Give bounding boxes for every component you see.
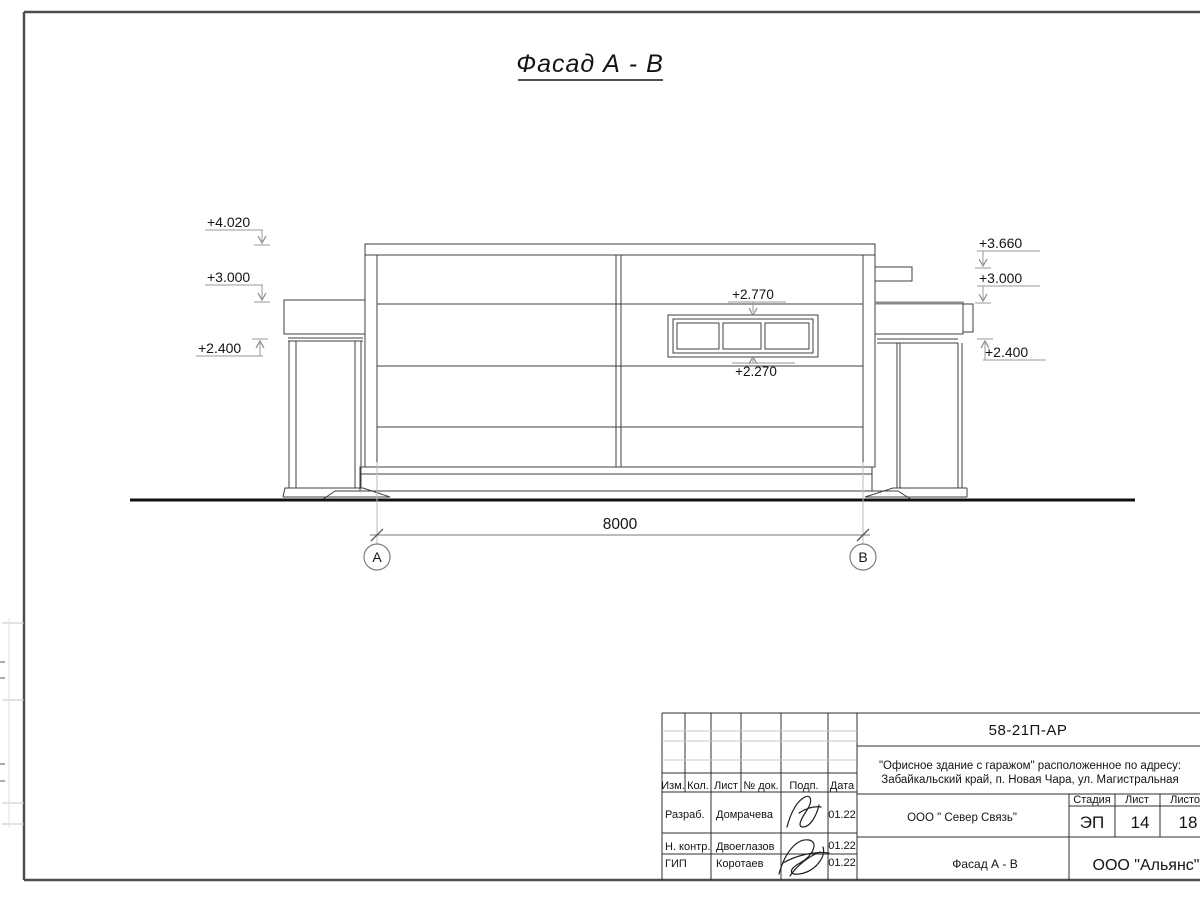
right-canopy-columns	[897, 343, 962, 488]
left-canopy-columns	[289, 341, 361, 488]
stage-value: ЭП	[1080, 813, 1104, 832]
row-role: Н. контр.	[665, 841, 710, 853]
col-kol: Кол.	[687, 780, 709, 792]
ribbon-window	[668, 315, 818, 357]
sheet-value: 14	[1131, 813, 1150, 832]
frame-border	[24, 12, 1200, 880]
drawing-title: Фасад А - В	[516, 50, 664, 80]
sheet-frame	[24, 12, 1200, 880]
col-list: Лист	[714, 780, 738, 792]
base-band	[360, 474, 872, 491]
row-name: Коротаев	[716, 858, 764, 870]
mark-3660-label: +3.660	[979, 235, 1022, 251]
mark-2400l-label: +2.400	[198, 340, 241, 356]
right-canopy-roof	[875, 302, 963, 334]
right-canopy-soffit	[877, 339, 958, 343]
mark-2270-label: +2.270	[735, 364, 777, 379]
main-wall-outline	[365, 244, 875, 467]
mark-2270-leader	[732, 359, 795, 363]
left-canopy-base	[283, 488, 390, 497]
axis-a-label: А	[372, 549, 382, 565]
window-pane-1	[677, 323, 719, 349]
mark-3000r-label: +3.000	[979, 270, 1022, 286]
siding-lines	[377, 304, 863, 427]
dimension-and-axes: 8000 А В	[364, 462, 876, 570]
window-pane-3	[765, 323, 809, 349]
contractor-name: ООО " Север Связь"	[907, 812, 1017, 824]
window-pane-2	[723, 323, 761, 349]
corner-piers	[377, 255, 863, 467]
stage-label: Стадия	[1073, 794, 1111, 806]
sheets-value: 18	[1179, 813, 1198, 832]
mark-2400r-label: +2.400	[985, 344, 1028, 360]
org-name: ООО "Альянс"	[1093, 857, 1200, 874]
mark-4020-label: +4.020	[207, 214, 250, 230]
right-canopy-base	[865, 488, 967, 497]
elevation-marks-right: +3.660 +3.000 +2.400	[975, 235, 1046, 360]
mark-3000l-label: +3.000	[207, 269, 250, 285]
row-date: 01.22	[828, 809, 856, 821]
window-outer-frame	[668, 315, 818, 357]
row-name: Домрачева	[716, 809, 774, 821]
plinth-foundation	[322, 467, 912, 500]
mark-3000r-leader	[975, 286, 1040, 303]
stamp-sheet-name: Фасад А - В	[952, 857, 1017, 871]
col-doc: № док.	[743, 780, 778, 792]
left-canopy-roof	[284, 300, 365, 334]
left-canopy-soffit	[288, 338, 363, 341]
row-role: Разраб.	[665, 809, 705, 821]
col-izm: Изм.	[661, 780, 685, 792]
title-block: 58-21П-АР "Офисное здание с гаражом" рас…	[661, 713, 1200, 880]
margin-lines	[2, 623, 24, 824]
title-block-grid	[662, 713, 1200, 880]
plinth-band	[360, 467, 872, 474]
mark-3660-leader	[975, 251, 1040, 268]
row-date: 01.22	[828, 840, 856, 852]
window-inner-frame	[673, 319, 813, 353]
signatures	[779, 796, 829, 876]
axis-b-label: В	[858, 549, 867, 565]
right-canopy	[865, 302, 973, 497]
mark-4020-leader	[205, 230, 270, 245]
elevation-marks-left: +4.020 +3.000 +2.400	[196, 214, 270, 356]
doc-code: 58-21П-АР	[989, 722, 1068, 739]
row-date: 01.22	[828, 857, 856, 869]
col-data: Дата	[830, 780, 855, 792]
left-margin-marks	[0, 618, 24, 828]
project-address-line2: Забайкальский край, п. Новая Чара, ул. М…	[881, 774, 1179, 786]
roof-projection-box	[875, 267, 912, 281]
wall-divider	[616, 255, 621, 467]
sheet-label: Лист	[1125, 794, 1149, 806]
mark-3000l-leader	[205, 285, 270, 302]
margin-ticks	[0, 662, 5, 781]
signature-2	[779, 840, 829, 876]
signature-1	[787, 796, 821, 827]
facade-drawing-svg: Фасад А - В	[0, 0, 1200, 900]
page-title: Фасад А - В	[516, 50, 664, 78]
row-name: Двоеглазов	[716, 841, 775, 853]
dimension-value: 8000	[603, 516, 638, 533]
right-canopy-endcap	[963, 304, 973, 332]
row-role: ГИП	[665, 858, 687, 870]
col-podp: Подп.	[789, 780, 818, 792]
mark-2770-label: +2.770	[732, 287, 774, 302]
drawing-sheet: Фасад А - В	[0, 0, 1200, 900]
sheets-label: Листов	[1170, 794, 1200, 806]
project-address-line1: "Офисное здание с гаражом" расположенное…	[879, 760, 1181, 772]
